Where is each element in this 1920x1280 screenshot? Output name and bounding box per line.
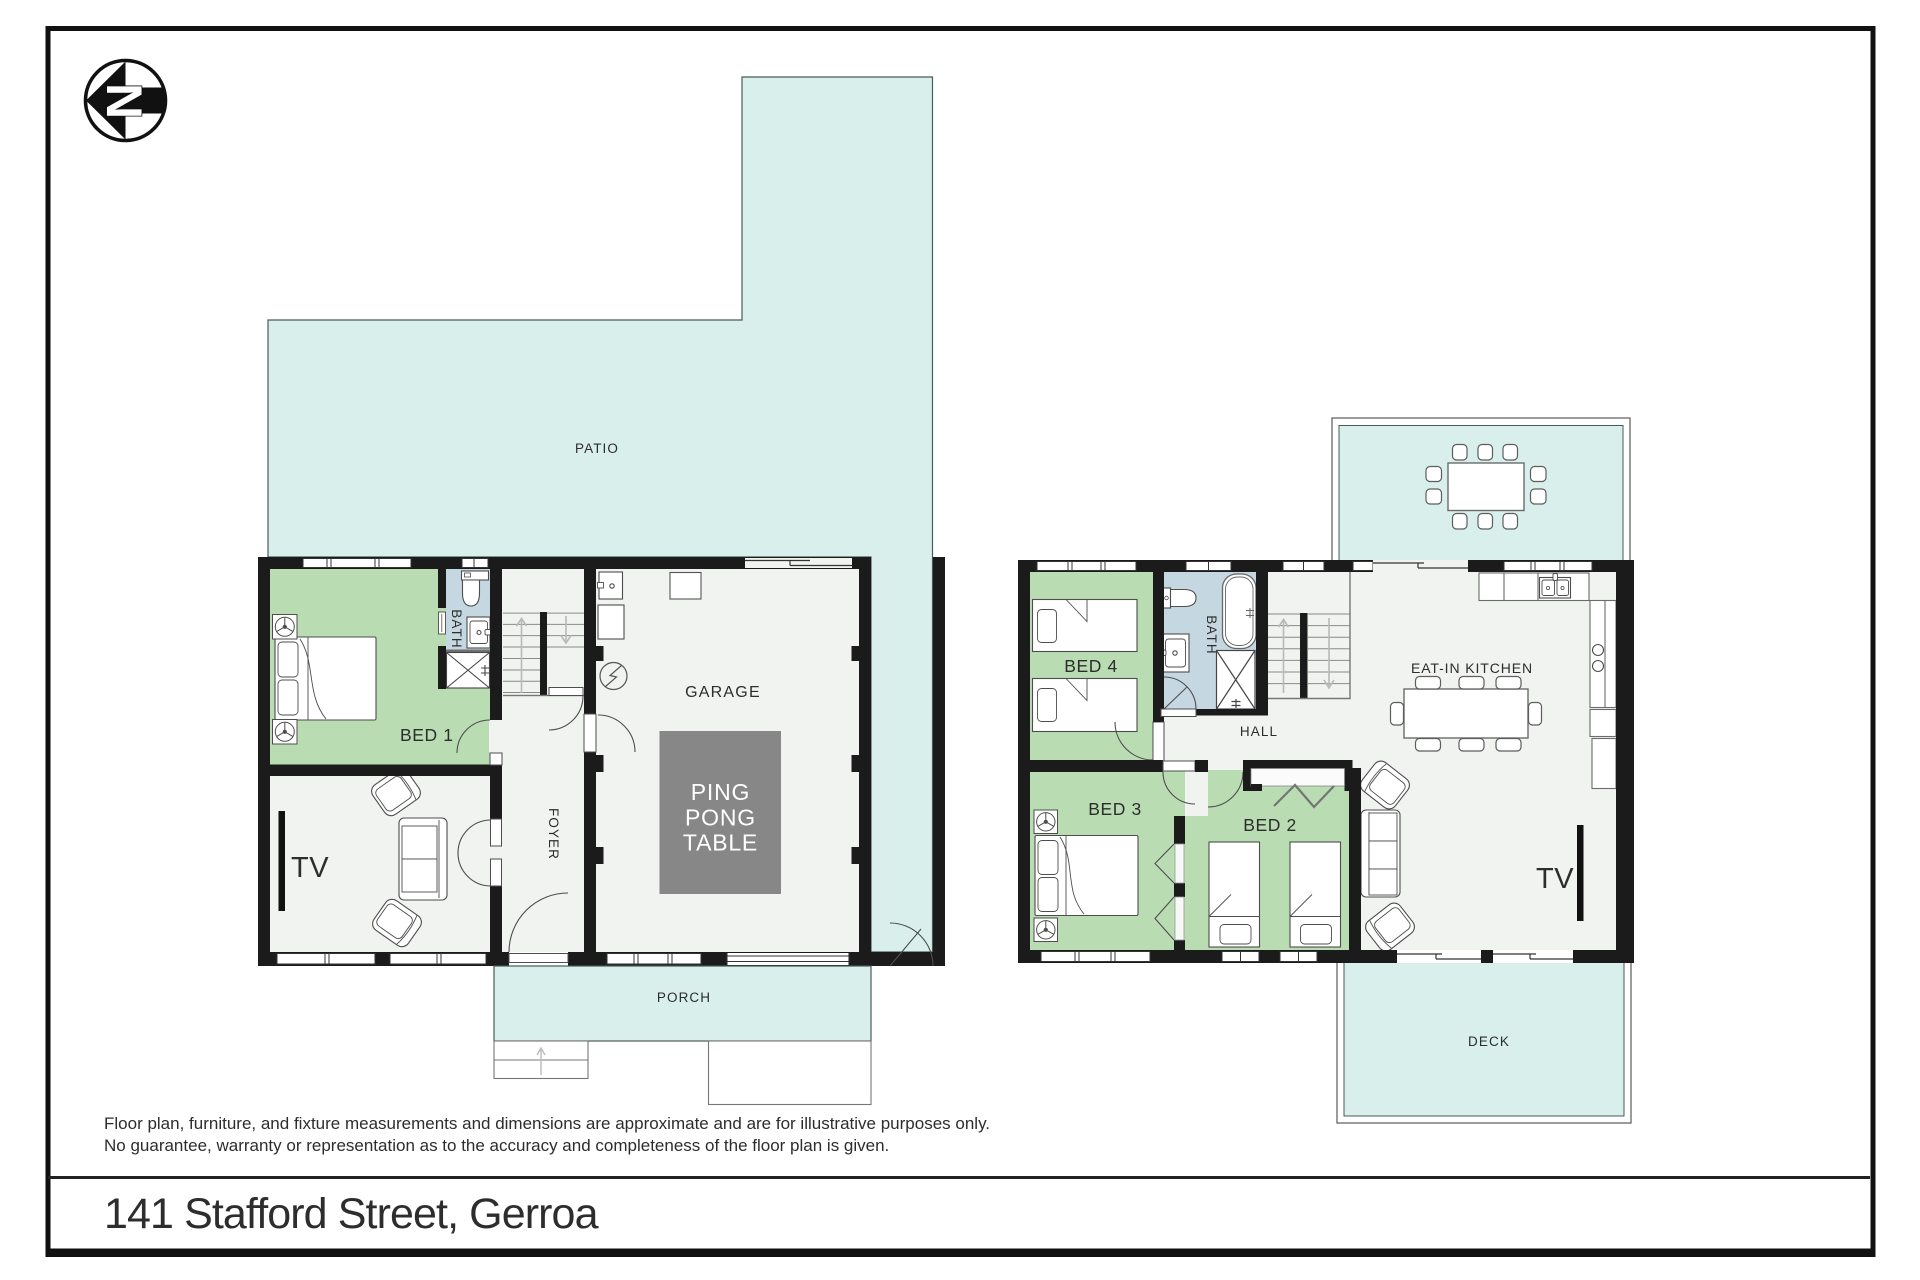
svg-text:HALL: HALL: [1240, 724, 1278, 739]
svg-text:BATH: BATH: [1204, 615, 1219, 654]
svg-text:BED 4: BED 4: [1064, 656, 1118, 676]
svg-text:TV: TV: [291, 852, 329, 884]
svg-text:No guarantee, warranty or repr: No guarantee, warranty or representation…: [104, 1136, 889, 1155]
svg-text:Floor plan, furniture, and fix: Floor plan, furniture, and fixture measu…: [104, 1114, 990, 1133]
svg-text:GARAGE: GARAGE: [685, 684, 761, 701]
svg-text:BED 3: BED 3: [1088, 799, 1142, 819]
svg-text:BATH: BATH: [449, 609, 464, 648]
svg-text:FOYER: FOYER: [546, 808, 561, 860]
svg-text:BED 2: BED 2: [1243, 815, 1297, 835]
svg-text:BED 1: BED 1: [400, 725, 454, 745]
svg-text:TV: TV: [1536, 863, 1574, 895]
svg-text:PORCH: PORCH: [657, 990, 711, 1005]
svg-text:141 Stafford Street, Gerroa: 141 Stafford Street, Gerroa: [104, 1190, 599, 1238]
svg-text:PINGPONGTABLE: PINGPONGTABLE: [683, 779, 758, 856]
svg-text:N: N: [96, 83, 152, 119]
svg-text:EAT-IN KITCHEN: EAT-IN KITCHEN: [1411, 660, 1533, 676]
svg-text:DECK: DECK: [1468, 1034, 1510, 1049]
svg-text:PATIO: PATIO: [575, 441, 619, 456]
